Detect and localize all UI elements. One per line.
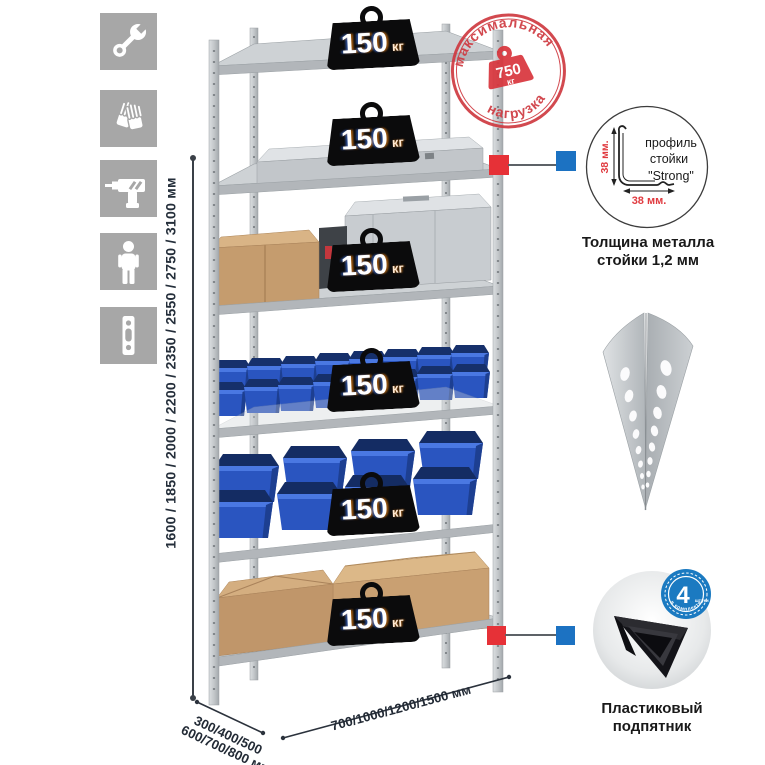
stamp-weight-icon: 750 кг: [481, 43, 535, 91]
quantity-badge: 4 штуки в комплекте: [661, 569, 711, 619]
callout-marker-foot-detail: [556, 626, 575, 645]
foot-caption: Пластиковый подпятник: [582, 700, 722, 737]
cardboard-box: [211, 230, 319, 306]
profile-dim-horizontal: 38 мм.: [632, 195, 667, 207]
base-dimensions: 300/400/500 600/700/800 мм 700/1000/1200…: [140, 660, 540, 765]
wrench-icon: [100, 13, 157, 70]
svg-text:профиль: профиль: [645, 136, 697, 150]
drill-icon: [100, 160, 157, 217]
shelf-load-badge: 150кг: [323, 470, 420, 537]
shelf-load-badge: 150кг: [323, 346, 420, 413]
shelf-load-badge: 150кг: [323, 226, 420, 293]
stamp-arc-bottom: нагрузка: [482, 88, 551, 128]
post-profile-detail: 38 мм. 38 мм. профиль стойки "Strong": [583, 103, 713, 233]
plastic-foot-detail: 4 штуки в комплекте: [590, 566, 722, 698]
depth-dimension-label: 300/400/500 600/700/800 мм: [179, 710, 279, 765]
svg-text:нагрузка: нагрузка: [482, 88, 551, 128]
callout-marker-post: [489, 155, 509, 175]
gloves-icon: [100, 90, 157, 147]
perforated-angle-post-image: [598, 302, 698, 517]
shelf-load-badge: 150кг: [323, 100, 420, 167]
height-dimension-label: 1600 / 1850 / 2000 / 2200 / 2350 / 2550 …: [164, 91, 182, 636]
callout-marker-detail: [556, 151, 576, 171]
max-load-stamp: максимальная нагрузка 750 кг: [447, 8, 569, 130]
callout-marker-foot: [487, 626, 506, 645]
shelf-load-badge: 150кг: [323, 4, 420, 71]
person-icon: [100, 233, 157, 290]
width-dimension-label: 700/1000/1200/1500 мм: [329, 682, 472, 734]
cardboard-box: [217, 570, 333, 656]
svg-text:стойки: стойки: [650, 152, 688, 166]
product-infographic: 1600 / 1850 / 2000 / 2200 / 2350 / 2550 …: [0, 0, 765, 765]
shelf-load-badge: 150кг: [323, 580, 420, 647]
profile-caption: Толщина металла стойки 1,2 мм: [578, 234, 718, 271]
callout-line: [505, 634, 557, 636]
profile-dim-vertical: 38 мм.: [599, 140, 611, 173]
callout-line: [508, 164, 557, 166]
svg-text:"Strong": "Strong": [648, 169, 694, 183]
rack-post-icon: [100, 307, 157, 364]
height-dimension-line: [192, 158, 194, 698]
